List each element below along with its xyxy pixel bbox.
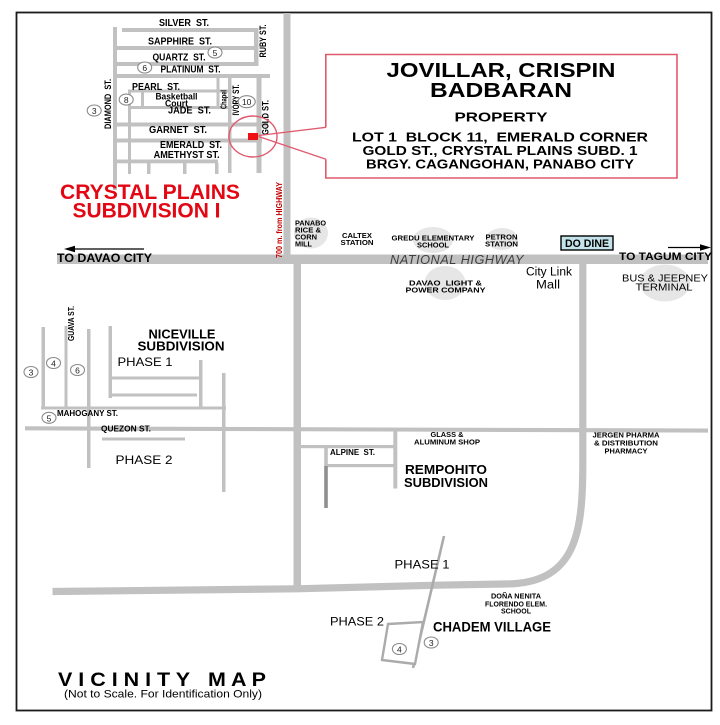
- svg-text:SUBDIVISION: SUBDIVISION: [404, 475, 488, 490]
- svg-text:6: 6: [142, 63, 147, 73]
- svg-text:PHASE 2: PHASE 2: [330, 615, 384, 629]
- svg-text:QUEZON ST.: QUEZON ST.: [101, 424, 151, 434]
- svg-text:POWER COMPANY: POWER COMPANY: [406, 286, 486, 295]
- svg-text:MILL: MILL: [295, 240, 312, 249]
- svg-text:PHARMACY: PHARMACY: [605, 447, 648, 456]
- svg-text:AMETHYST ST.: AMETHYST ST.: [154, 150, 220, 161]
- svg-text:BADBARAN: BADBARAN: [430, 80, 572, 102]
- svg-text:10: 10: [242, 97, 252, 107]
- svg-text:(Not to Scale. For Identificat: (Not to Scale. For Identification Only): [64, 689, 262, 701]
- svg-text:STATION: STATION: [485, 240, 518, 249]
- svg-text:TERMINAL: TERMINAL: [636, 282, 693, 294]
- svg-text:STATION: STATION: [341, 238, 374, 247]
- svg-text:4: 4: [51, 359, 56, 369]
- svg-text:SUBDIVISION: SUBDIVISION: [138, 340, 225, 354]
- svg-text:3: 3: [429, 638, 434, 648]
- svg-text:NATIONAL HIGHWAY: NATIONAL HIGHWAY: [390, 253, 525, 267]
- svg-text:SCHOOL: SCHOOL: [417, 241, 449, 250]
- svg-text:5: 5: [47, 413, 52, 423]
- svg-text:4: 4: [397, 645, 402, 655]
- svg-text:SILVER ST.: SILVER ST.: [159, 18, 209, 29]
- svg-text:SAPPHIRE ST.: SAPPHIRE ST.: [148, 37, 212, 48]
- svg-text:PHASE 1: PHASE 1: [118, 355, 173, 369]
- svg-text:SCHOOL: SCHOOL: [501, 607, 531, 616]
- svg-text:ALPINE ST.: ALPINE ST.: [330, 448, 375, 457]
- svg-text:RUBY ST.: RUBY ST.: [258, 25, 269, 58]
- svg-text:GARNET ST.: GARNET ST.: [149, 125, 207, 136]
- svg-text:QUARTZ ST.: QUARTZ ST.: [153, 53, 206, 64]
- svg-text:ALUMINUM SHOP: ALUMINUM SHOP: [414, 438, 480, 447]
- svg-text:PLATINUM ST.: PLATINUM ST.: [161, 65, 221, 76]
- svg-text:City Link: City Link: [526, 267, 572, 279]
- svg-text:BRGY. CAGANGOHAN, PANABO CITY: BRGY. CAGANGOHAN, PANABO CITY: [366, 157, 634, 172]
- svg-text:TO DAVAO CITY: TO DAVAO CITY: [57, 253, 152, 265]
- svg-text:5: 5: [213, 48, 218, 58]
- svg-text:GUAVA ST.: GUAVA ST.: [67, 306, 76, 341]
- svg-text:3: 3: [29, 368, 34, 378]
- svg-text:DIAMOND ST.: DIAMOND ST.: [103, 79, 114, 129]
- svg-text:PHASE 1: PHASE 1: [395, 558, 450, 572]
- svg-text:TO TAGUM CITY: TO TAGUM CITY: [619, 251, 713, 263]
- svg-text:MAHOGANY ST.: MAHOGANY ST.: [57, 409, 118, 418]
- svg-text:CHADEM VILLAGE: CHADEM VILLAGE: [433, 620, 551, 635]
- svg-text:SUBDIVISION I: SUBDIVISION I: [73, 199, 221, 223]
- svg-text:8: 8: [124, 95, 129, 105]
- svg-text:DO DINE: DO DINE: [565, 238, 609, 250]
- svg-text:Chapel: Chapel: [220, 90, 229, 109]
- svg-text:700 m. from HIGHWAY: 700 m. from HIGHWAY: [275, 181, 284, 258]
- svg-text:3: 3: [92, 106, 97, 116]
- svg-text:JOVILLAR, CRISPIN: JOVILLAR, CRISPIN: [387, 60, 616, 82]
- svg-text:PHASE 2: PHASE 2: [116, 453, 173, 467]
- svg-text:6: 6: [75, 366, 80, 376]
- svg-text:PROPERTY: PROPERTY: [455, 111, 549, 125]
- svg-text:Mall: Mall: [536, 280, 560, 292]
- svg-text:JADE ST.: JADE ST.: [168, 106, 211, 117]
